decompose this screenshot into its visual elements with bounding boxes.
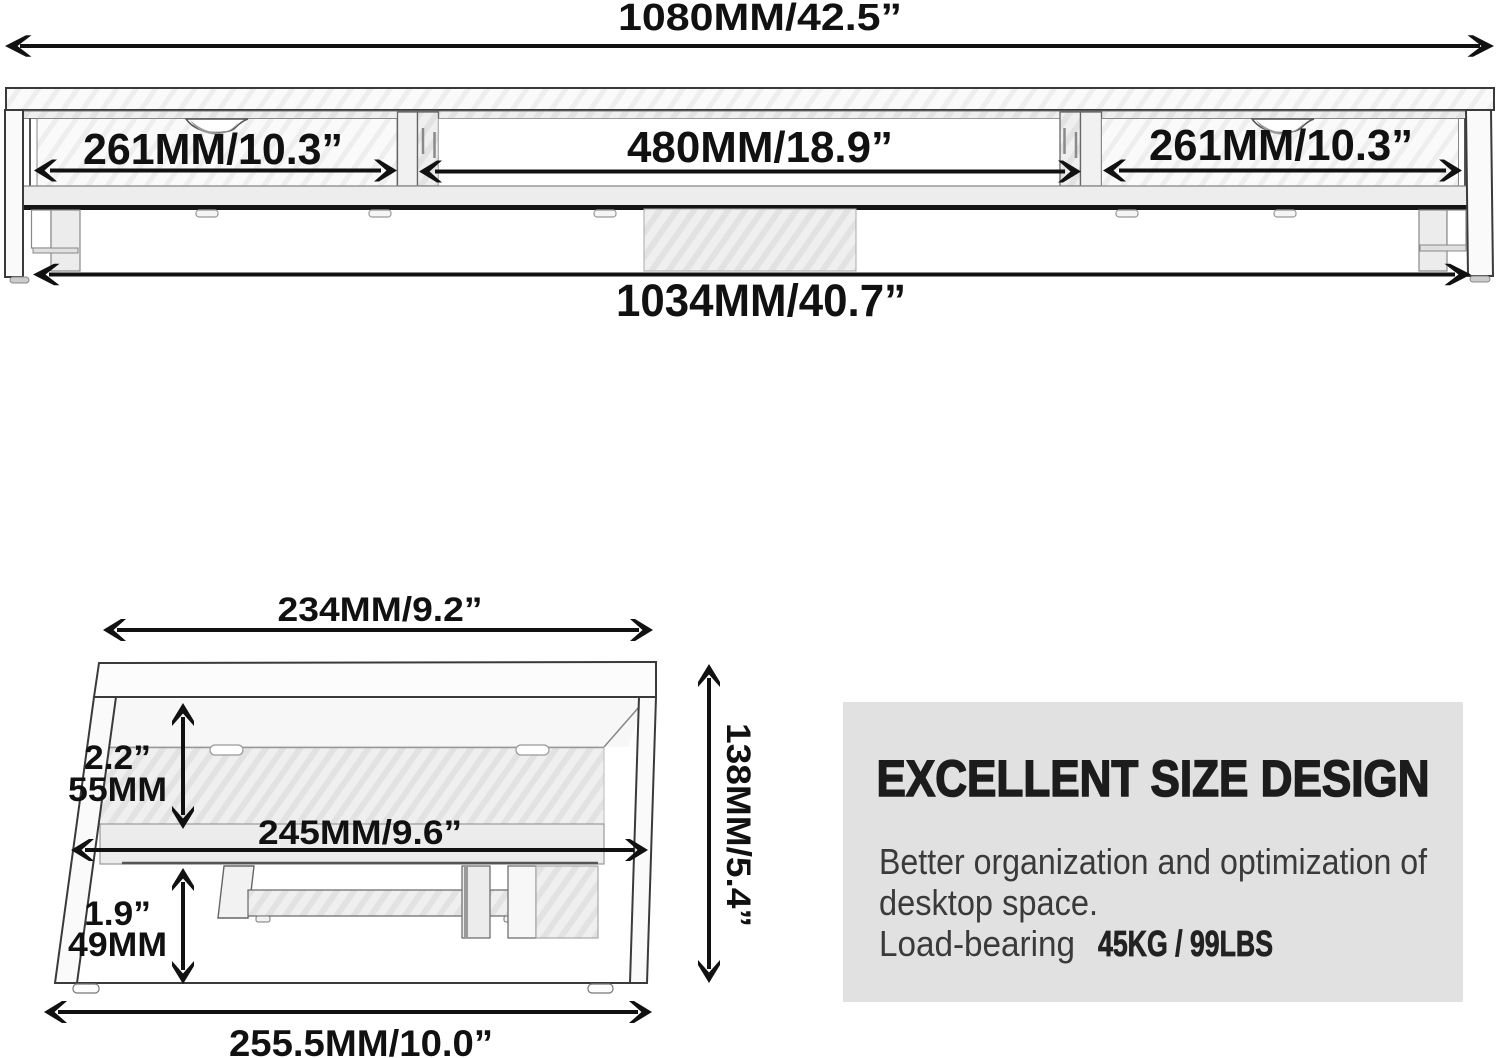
svg-text:Better organization and optimi: Better organization and optimization of: [879, 841, 1428, 882]
svg-text:245MM/9.6”: 245MM/9.6”: [258, 814, 462, 852]
svg-text:480MM/18.9”: 480MM/18.9”: [627, 123, 893, 172]
svg-text:desktop space.: desktop space.: [879, 882, 1098, 923]
svg-text:261MM/10.3”: 261MM/10.3”: [83, 125, 343, 174]
svg-text:Load-bearing: Load-bearing: [879, 923, 1075, 964]
svg-text:261MM/10.3”: 261MM/10.3”: [1149, 121, 1413, 170]
svg-text:1034MM/40.7”: 1034MM/40.7”: [616, 275, 906, 326]
svg-text:138MM/5.4”: 138MM/5.4”: [719, 723, 757, 927]
svg-text:1080MM/42.5”: 1080MM/42.5”: [618, 0, 902, 39]
svg-text:EXCELLENT SIZE DESIGN: EXCELLENT SIZE DESIGN: [877, 750, 1430, 807]
svg-text:45KG / 99LBS: 45KG / 99LBS: [1098, 923, 1273, 964]
svg-text:55MM: 55MM: [68, 771, 167, 809]
svg-text:49MM: 49MM: [68, 926, 167, 964]
svg-text:234MM/9.2”: 234MM/9.2”: [278, 591, 483, 629]
svg-text:255.5MM/10.0”: 255.5MM/10.0”: [229, 1023, 493, 1058]
